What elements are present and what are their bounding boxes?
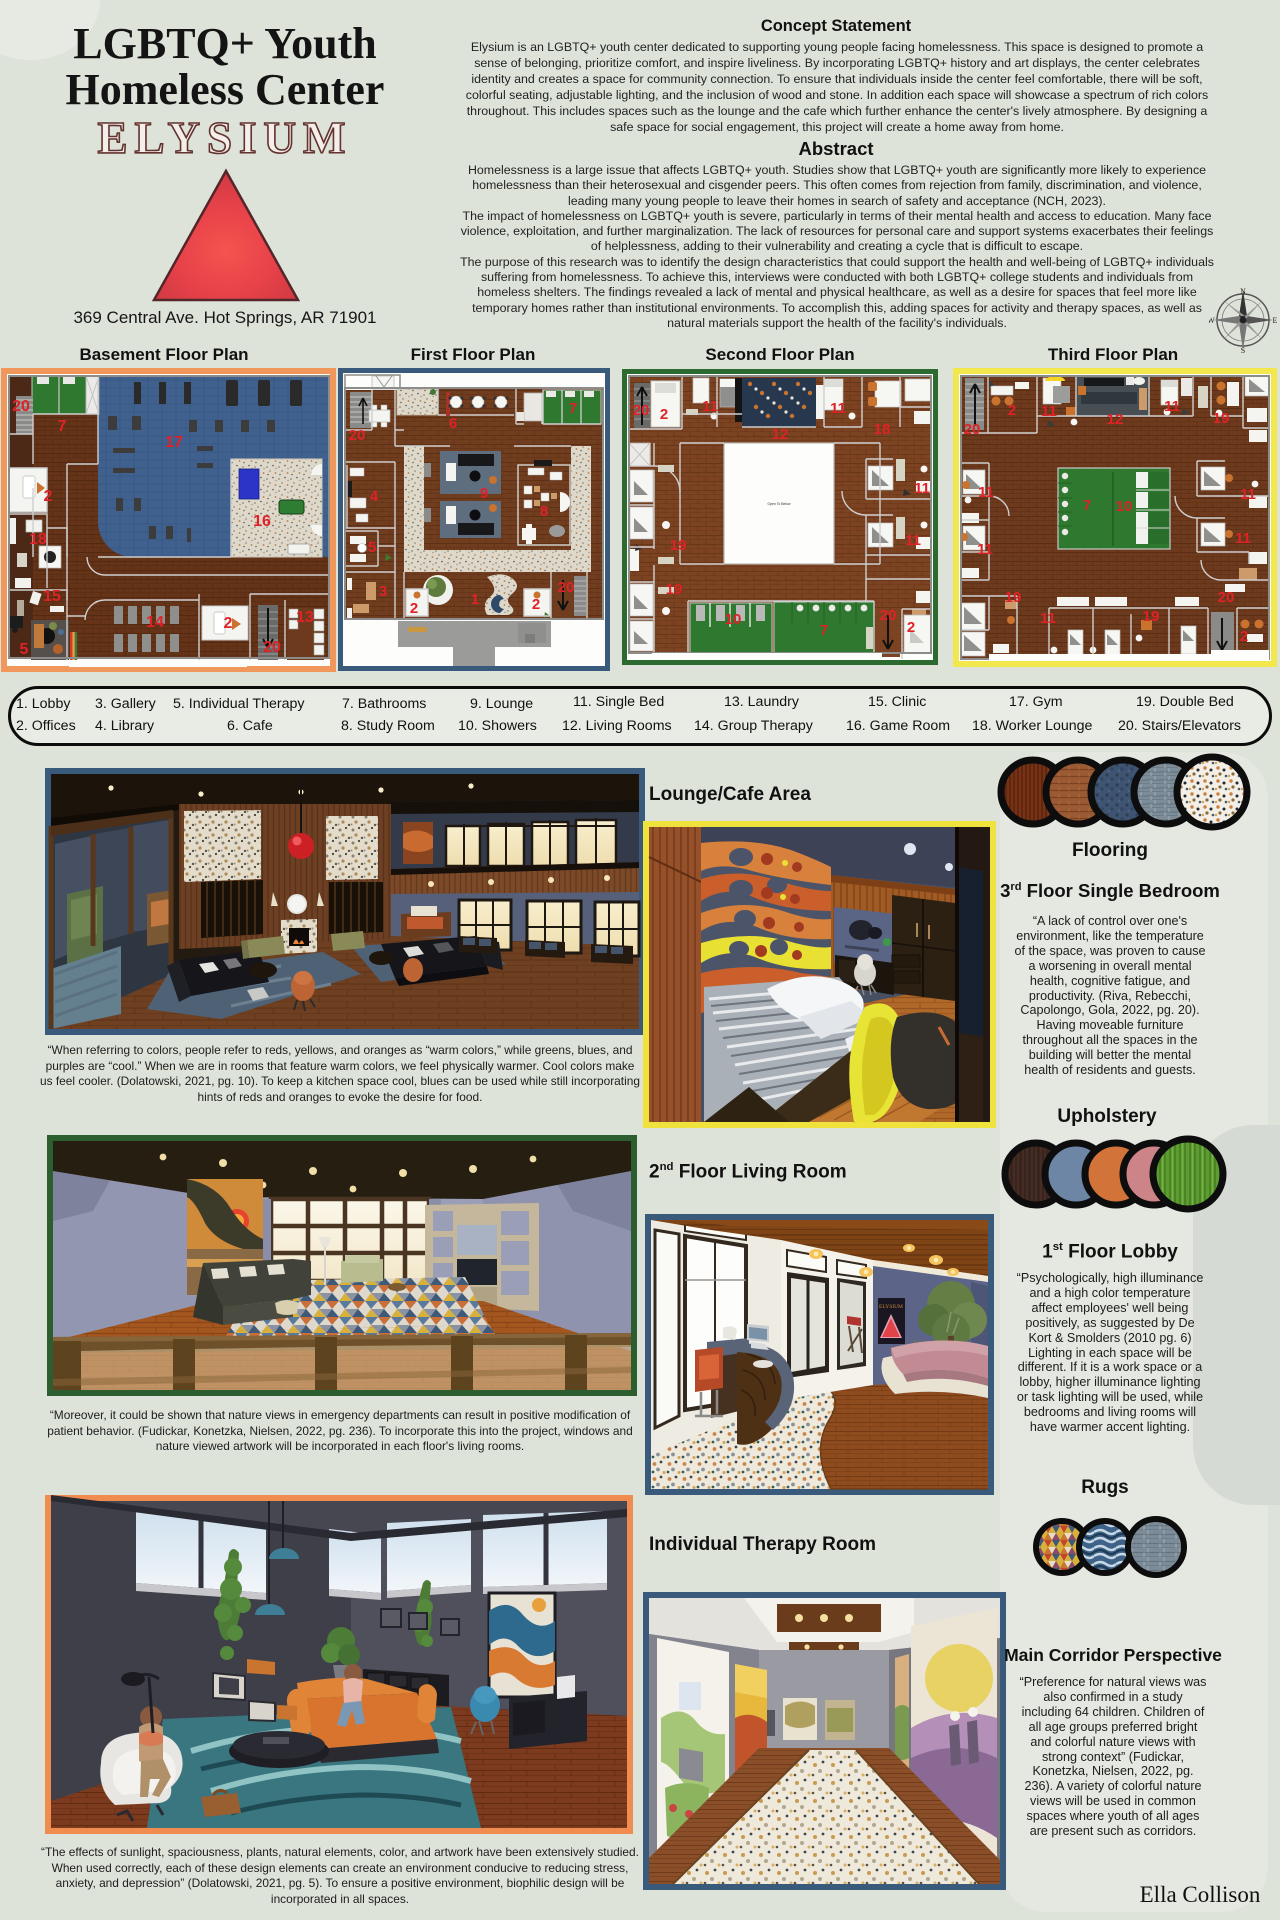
svg-text:20: 20	[1218, 589, 1235, 606]
svg-text:1: 1	[471, 591, 479, 608]
svg-text:19: 19	[1143, 608, 1160, 625]
svg-text:7: 7	[569, 400, 577, 417]
svg-text:11: 11	[977, 541, 993, 558]
svg-text:20: 20	[349, 427, 366, 444]
svg-text:ELYSIUM: ELYSIUM	[879, 1304, 903, 1310]
svg-text:Open To Below: Open To Below	[768, 502, 791, 506]
svg-text:11: 11	[978, 484, 994, 501]
svg-text:19: 19	[666, 581, 683, 598]
svg-text:10: 10	[725, 611, 742, 628]
svg-text:2: 2	[532, 596, 540, 613]
svg-text:6: 6	[449, 415, 457, 432]
svg-text:19: 19	[670, 537, 687, 554]
svg-text:2: 2	[1240, 628, 1248, 645]
svg-text:18: 18	[29, 531, 47, 548]
svg-text:12: 12	[1107, 411, 1124, 428]
svg-text:12: 12	[772, 426, 789, 443]
svg-text:2: 2	[410, 600, 418, 617]
svg-text:20: 20	[263, 639, 281, 656]
svg-text:7: 7	[58, 418, 67, 435]
svg-text:2: 2	[907, 619, 915, 636]
svg-text:19: 19	[1213, 410, 1230, 427]
svg-text:W: W	[1209, 316, 1215, 325]
svg-text:20: 20	[964, 421, 981, 438]
svg-text:20: 20	[633, 402, 650, 419]
svg-text:9: 9	[480, 485, 488, 502]
svg-text:10: 10	[1116, 498, 1133, 515]
svg-text:20: 20	[880, 607, 897, 624]
svg-text:8: 8	[540, 503, 548, 520]
svg-text:11: 11	[1235, 530, 1251, 547]
svg-text:11: 11	[905, 532, 921, 549]
svg-text:20: 20	[12, 398, 30, 415]
svg-text:E: E	[1273, 316, 1277, 325]
svg-text:18: 18	[874, 421, 891, 438]
svg-text:13: 13	[296, 609, 314, 626]
svg-text:19: 19	[1005, 589, 1022, 606]
svg-text:11: 11	[1041, 403, 1057, 420]
svg-text:4: 4	[370, 488, 379, 505]
svg-text:2: 2	[44, 488, 53, 505]
svg-text:7: 7	[1083, 497, 1091, 514]
svg-text:3: 3	[379, 583, 387, 600]
svg-text:14: 14	[146, 614, 164, 631]
svg-text:7: 7	[820, 622, 828, 639]
svg-text:2: 2	[660, 406, 668, 423]
svg-text:11: 11	[914, 480, 930, 497]
svg-text:2: 2	[224, 615, 233, 632]
svg-text:11: 11	[1040, 610, 1056, 627]
svg-text:17: 17	[165, 434, 183, 451]
svg-text:20: 20	[558, 579, 575, 596]
svg-text:2: 2	[1008, 402, 1016, 419]
svg-text:11: 11	[1164, 398, 1180, 415]
svg-text:5: 5	[20, 641, 29, 658]
svg-text:N: N	[1240, 287, 1246, 296]
svg-text:11: 11	[702, 398, 718, 415]
svg-text:11: 11	[1240, 486, 1256, 503]
svg-text:16: 16	[253, 513, 271, 530]
svg-text:11: 11	[830, 400, 846, 417]
svg-text:5: 5	[368, 539, 376, 556]
svg-text:15: 15	[43, 588, 61, 605]
